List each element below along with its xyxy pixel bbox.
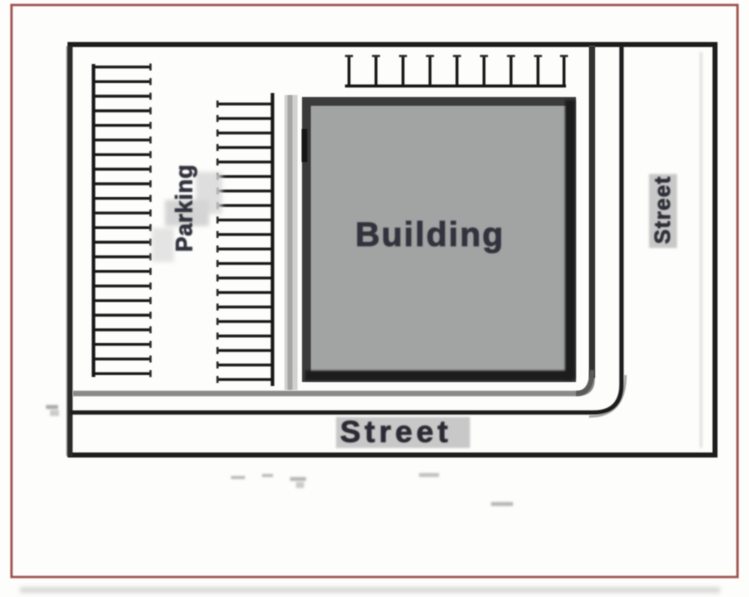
svg-text:Parking: Parking <box>171 164 197 252</box>
svg-text:Street: Street <box>650 176 675 244</box>
svg-text:Street: Street <box>340 414 452 449</box>
svg-text:Building: Building <box>355 216 505 254</box>
